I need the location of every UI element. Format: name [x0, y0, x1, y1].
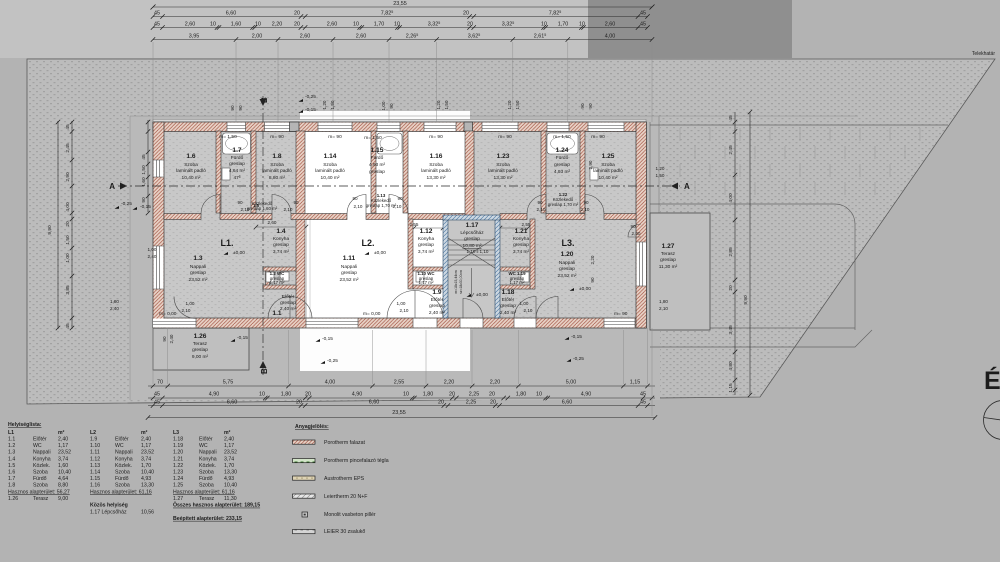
svg-text:2,60: 2,60 — [356, 34, 367, 40]
svg-text:A: A — [109, 182, 115, 191]
svg-text:1.17 Lépcsőház: 1.17 Lépcsőház — [90, 510, 127, 516]
svg-text:2,40: 2,40 — [632, 231, 641, 236]
svg-text:10,56: 10,56 — [141, 510, 154, 516]
svg-text:greslap: greslap — [500, 303, 516, 309]
svg-text:1.12: 1.12 — [90, 456, 100, 462]
svg-text:1,60: 1,60 — [231, 22, 242, 28]
svg-text:Austrotherm EPS: Austrotherm EPS — [324, 476, 365, 482]
svg-text:2,45: 2,45 — [65, 143, 71, 153]
svg-text:4,00: 4,00 — [728, 193, 734, 203]
svg-text:90: 90 — [237, 200, 243, 205]
svg-text:Előtér: Előtér — [502, 297, 515, 303]
svg-text:4,00: 4,00 — [65, 202, 71, 212]
svg-text:1,80: 1,80 — [516, 392, 527, 398]
svg-text:Helyiséglista:: Helyiséglista: — [8, 422, 42, 428]
svg-text:10,40 m²: 10,40 m² — [321, 175, 340, 181]
svg-text:laminált padló: laminált padló — [488, 168, 518, 174]
svg-text:Közlek.: Közlek. — [33, 463, 50, 469]
svg-text:20: 20 — [728, 285, 734, 291]
svg-text:Nappali: Nappali — [33, 450, 51, 456]
svg-text:1.17: 1.17 — [466, 222, 479, 229]
svg-text:Előtér: Előtér — [282, 294, 295, 300]
svg-text:2,45: 2,45 — [728, 145, 734, 155]
svg-text:1,50: 1,50 — [656, 173, 665, 178]
svg-text:10,40: 10,40 — [141, 470, 154, 476]
svg-text:WC: WC — [199, 443, 208, 449]
svg-text:1,17 m²: 1,17 m² — [419, 280, 434, 285]
svg-text:1.10: 1.10 — [90, 443, 100, 449]
svg-text:Terasz: Terasz — [193, 341, 208, 347]
svg-text:Összes hasznos alapterület: 18: Összes hasznos alapterület: 189,15 — [173, 502, 260, 509]
svg-text:Nappali: Nappali — [190, 264, 206, 270]
svg-text:1.11: 1.11 — [90, 450, 100, 456]
svg-text:m= 90: m= 90 — [498, 134, 512, 140]
svg-text:Beépített alapterület: 233,15: Beépített alapterület: 233,15 — [173, 516, 242, 522]
svg-text:Porotherm falazat: Porotherm falazat — [324, 440, 366, 446]
svg-text:2,40 m²: 2,40 m² — [429, 310, 446, 316]
svg-text:23,52 m²: 23,52 m² — [340, 277, 359, 283]
svg-text:9,00: 9,00 — [58, 496, 68, 502]
svg-text:23,52 m²: 23,52 m² — [558, 273, 577, 279]
svg-text:1,17: 1,17 — [224, 443, 234, 449]
svg-text:1,00: 1,00 — [148, 247, 157, 252]
svg-text:2,10: 2,10 — [581, 207, 590, 212]
svg-text:45: 45 — [154, 400, 160, 406]
svg-text:1,80: 1,80 — [281, 392, 292, 398]
svg-text:10: 10 — [541, 22, 547, 28]
svg-text:1.7: 1.7 — [8, 476, 15, 482]
svg-text:90: 90 — [580, 103, 585, 109]
svg-text:m= 1,50: m= 1,50 — [364, 135, 382, 141]
svg-text:m= 0,00: m= 0,00 — [159, 311, 177, 317]
svg-text:45: 45 — [141, 154, 147, 160]
svg-text:10: 10 — [536, 392, 542, 398]
svg-text:Hasznos alapterület: 61,16: Hasznos alapterület: 61,16 — [90, 489, 152, 495]
svg-text:1.16: 1.16 — [90, 483, 100, 489]
svg-text:1,17: 1,17 — [58, 443, 68, 449]
svg-text:4,64 m²: 4,64 m² — [229, 168, 246, 174]
svg-text:2,55: 2,55 — [522, 222, 531, 227]
svg-text:4,00: 4,00 — [605, 34, 616, 40]
svg-text:Szoba: Szoba — [496, 162, 510, 168]
svg-text:1.21: 1.21 — [173, 456, 183, 462]
svg-text:LEIER 30 zsalukő: LEIER 30 zsalukő — [324, 529, 365, 535]
svg-text:1.6: 1.6 — [8, 470, 15, 476]
svg-text:20: 20 — [438, 400, 444, 406]
svg-text:90: 90 — [630, 224, 636, 229]
svg-text:L3: L3 — [173, 430, 179, 436]
svg-text:-0,25: -0,25 — [327, 358, 338, 364]
svg-text:70: 70 — [157, 380, 163, 386]
svg-text:1.24: 1.24 — [173, 476, 183, 482]
svg-text:1.3: 1.3 — [8, 450, 15, 456]
svg-text:1.18: 1.18 — [502, 289, 515, 296]
svg-text:greslap: greslap — [280, 300, 296, 306]
svg-text:Nappali: Nappali — [559, 260, 575, 266]
svg-text:4,90: 4,90 — [581, 392, 592, 398]
svg-text:10: 10 — [210, 22, 216, 28]
svg-text:A: A — [684, 182, 690, 191]
svg-text:2,60: 2,60 — [300, 34, 311, 40]
svg-text:6,60: 6,60 — [562, 400, 573, 406]
svg-text:m= 90: m= 90 — [270, 134, 284, 140]
svg-text:10,40: 10,40 — [224, 483, 237, 489]
svg-text:Terasz: Terasz — [661, 251, 676, 257]
svg-text:Szoba: Szoba — [429, 162, 443, 168]
svg-text:L1.: L1. — [220, 238, 233, 248]
svg-text:90: 90 — [537, 200, 543, 205]
svg-text:m= 1,50: m= 1,50 — [553, 134, 571, 140]
svg-text:Közlek.: Közlek. — [199, 463, 216, 469]
svg-text:2,90: 2,90 — [65, 172, 71, 182]
svg-text:L2.: L2. — [361, 238, 374, 248]
svg-text:Szoba: Szoba — [270, 162, 284, 168]
svg-text:2,25: 2,25 — [469, 392, 480, 398]
svg-text:m= 0,00: m= 0,00 — [363, 311, 381, 317]
svg-text:Fürdő: Fürdő — [33, 476, 47, 482]
svg-text:-0,15: -0,15 — [322, 336, 333, 342]
svg-text:2,55: 2,55 — [410, 222, 419, 227]
svg-text:greslap: greslap — [554, 162, 570, 168]
svg-text:13,30 m²: 13,30 m² — [494, 175, 513, 181]
svg-text:m²: m² — [141, 430, 148, 436]
svg-text:Hasznos alapterület: 61,16: Hasznos alapterület: 61,16 — [173, 489, 235, 495]
svg-text:1.24: 1.24 — [556, 147, 569, 154]
svg-text:20: 20 — [294, 11, 300, 17]
svg-text:-0,15: -0,15 — [140, 204, 151, 210]
svg-text:Nappali: Nappali — [341, 264, 357, 270]
svg-text:Terasz: Terasz — [199, 496, 215, 502]
svg-text:1,80: 1,80 — [423, 392, 434, 398]
svg-text:13,30 m²: 13,30 m² — [427, 175, 446, 181]
svg-text:-0,15: -0,15 — [571, 334, 582, 340]
svg-text:1.23: 1.23 — [497, 153, 510, 160]
svg-text:4,93: 4,93 — [224, 476, 234, 482]
svg-text:45: 45 — [154, 392, 160, 398]
svg-text:Közös helyiség: Közös helyiség — [90, 503, 128, 509]
svg-text:2,10: 2,10 — [284, 207, 293, 212]
svg-text:2,40: 2,40 — [224, 437, 234, 443]
svg-text:6,60: 6,60 — [227, 400, 238, 406]
svg-text:1.9: 1.9 — [432, 289, 441, 296]
svg-text:sz=18x30,00cm: sz=18x30,00cm — [459, 270, 463, 294]
svg-text:L1: L1 — [8, 430, 14, 436]
svg-text:13,30: 13,30 — [141, 483, 154, 489]
svg-text:4,90: 4,90 — [209, 392, 220, 398]
svg-text:13,30: 13,30 — [224, 470, 237, 476]
svg-text:1,00: 1,00 — [381, 101, 386, 110]
svg-text:2,10: 2,10 — [182, 308, 191, 313]
svg-text:3,95: 3,95 — [189, 34, 200, 40]
svg-text:3,74: 3,74 — [224, 456, 234, 462]
svg-text:Nappali: Nappali — [199, 450, 217, 456]
svg-text:9,90: 9,90 — [743, 295, 749, 305]
svg-text:Fürdő: Fürdő — [115, 476, 129, 482]
svg-text:45: 45 — [65, 124, 71, 130]
svg-text:6,60: 6,60 — [226, 11, 237, 17]
svg-text:1.20: 1.20 — [561, 251, 574, 258]
svg-text:2,10: 2,10 — [524, 308, 533, 313]
svg-text:1.8: 1.8 — [272, 153, 281, 160]
svg-text:1.16: 1.16 — [430, 153, 443, 160]
svg-text:1.4: 1.4 — [276, 228, 285, 235]
svg-text:1.25: 1.25 — [602, 153, 615, 160]
svg-text:Szoba: Szoba — [199, 470, 214, 476]
svg-text:1,17 m²: 1,17 m² — [270, 280, 285, 285]
svg-text:10,40 m²: 10,40 m² — [599, 175, 618, 181]
svg-text:2,40: 2,40 — [110, 306, 119, 311]
svg-text:2,10: 2,10 — [241, 207, 250, 212]
svg-text:2,10: 2,10 — [537, 207, 546, 212]
svg-text:1,50: 1,50 — [330, 100, 335, 109]
svg-text:1,17 m²: 1,17 m² — [510, 280, 525, 285]
svg-text:2,10: 2,10 — [354, 204, 363, 209]
svg-text:1.15: 1.15 — [90, 476, 100, 482]
svg-text:Monolit vasbeton pillér: Monolit vasbeton pillér — [324, 512, 376, 518]
svg-text:Szoba: Szoba — [601, 162, 615, 168]
svg-text:1,15: 1,15 — [728, 383, 734, 393]
svg-text:20: 20 — [305, 392, 311, 398]
svg-text:1.8: 1.8 — [8, 483, 15, 489]
svg-text:3,74 m²: 3,74 m² — [513, 249, 530, 255]
svg-text:20: 20 — [490, 400, 496, 406]
svg-text:2,85: 2,85 — [728, 247, 734, 257]
svg-text:90: 90 — [397, 196, 403, 201]
svg-text:Konyha: Konyha — [273, 236, 290, 242]
svg-text:1,00: 1,00 — [520, 301, 529, 306]
svg-text:1,20: 1,20 — [322, 100, 327, 109]
svg-text:1.22: 1.22 — [173, 463, 183, 469]
svg-text:1.14: 1.14 — [90, 470, 100, 476]
svg-text:90: 90 — [389, 103, 394, 109]
svg-text:1,00: 1,00 — [186, 301, 195, 306]
svg-text:20: 20 — [296, 400, 302, 406]
svg-text:1,10: 1,10 — [480, 249, 489, 254]
svg-text:É: É — [984, 366, 1000, 395]
svg-text:4,90: 4,90 — [352, 392, 363, 398]
svg-text:Konyha: Konyha — [513, 236, 530, 242]
svg-text:2,60: 2,60 — [605, 22, 616, 28]
svg-text:1,00: 1,00 — [65, 253, 71, 263]
svg-text:1.4: 1.4 — [8, 456, 15, 462]
svg-text:23,55: 23,55 — [393, 1, 407, 7]
svg-text:3,45: 3,45 — [728, 325, 734, 335]
svg-text:greslap: greslap — [341, 270, 357, 276]
svg-text:45: 45 — [640, 400, 646, 406]
svg-text:Konyha: Konyha — [418, 236, 435, 242]
svg-text:4,93 m²: 4,93 m² — [554, 169, 571, 175]
svg-text:1,50: 1,50 — [65, 235, 71, 245]
svg-text:-0,15: -0,15 — [237, 335, 248, 341]
svg-text:90: 90 — [162, 336, 167, 342]
svg-text:10: 10 — [394, 22, 400, 28]
svg-text:90: 90 — [230, 105, 235, 111]
svg-text:greslap: greslap — [513, 242, 529, 248]
svg-text:Porotherm pincefalazó tégla: Porotherm pincefalazó tégla — [324, 458, 389, 464]
svg-text:3,74: 3,74 — [141, 456, 151, 462]
svg-text:2,40: 2,40 — [58, 437, 68, 443]
svg-text:10,40 m²: 10,40 m² — [182, 175, 201, 181]
svg-text:90: 90 — [352, 196, 358, 201]
svg-text:1.5: 1.5 — [8, 463, 15, 469]
svg-text:Terasz: Terasz — [33, 496, 49, 502]
svg-text:±0,00: ±0,00 — [476, 292, 488, 298]
svg-text:2,20: 2,20 — [444, 380, 455, 386]
svg-text:m²: m² — [224, 430, 231, 436]
svg-text:2,40 m²: 2,40 m² — [280, 306, 297, 312]
svg-text:4,93: 4,93 — [141, 476, 151, 482]
svg-text:1,20: 1,20 — [436, 100, 441, 109]
svg-text:5,00: 5,00 — [566, 380, 577, 386]
svg-text:2,20: 2,20 — [590, 255, 595, 264]
svg-text:Nappali: Nappali — [115, 450, 133, 456]
svg-text:1,60: 1,60 — [141, 177, 147, 187]
svg-text:3,85: 3,85 — [65, 285, 71, 295]
svg-text:45: 45 — [640, 22, 646, 28]
svg-text:90: 90 — [141, 197, 147, 203]
svg-text:Konyha: Konyha — [199, 456, 217, 462]
svg-text:Fürdő: Fürdő — [199, 476, 213, 482]
svg-text:2,40: 2,40 — [148, 254, 157, 259]
svg-text:20: 20 — [463, 11, 469, 17]
svg-text:m=18x15,44cm: m=18x15,44cm — [454, 270, 458, 293]
svg-text:1.11: 1.11 — [343, 255, 356, 262]
svg-text:2,25: 2,25 — [466, 400, 477, 406]
svg-text:1,50: 1,50 — [515, 100, 520, 109]
svg-text:9,00 m²: 9,00 m² — [192, 354, 209, 360]
svg-text:Szoba: Szoba — [33, 483, 48, 489]
svg-text:WC: WC — [115, 443, 124, 449]
svg-text:greslap: greslap — [464, 236, 480, 242]
svg-text:45: 45 — [65, 323, 71, 329]
svg-text:2,20: 2,20 — [490, 380, 501, 386]
svg-text:20: 20 — [65, 221, 71, 227]
svg-text:1.13: 1.13 — [90, 463, 100, 469]
svg-text:greslap: greslap — [369, 169, 385, 175]
svg-text:Konyha: Konyha — [33, 456, 51, 462]
svg-text:8,80: 8,80 — [58, 483, 68, 489]
svg-text:1,70: 1,70 — [224, 463, 234, 469]
svg-text:11,30: 11,30 — [224, 496, 237, 502]
svg-text:Előtér: Előtér — [115, 437, 129, 443]
svg-text:Hasznos alapterület: 56,27: Hasznos alapterület: 56,27 — [8, 489, 70, 495]
svg-text:greslap: greslap — [429, 303, 445, 309]
svg-text:8,80 m²: 8,80 m² — [269, 175, 286, 181]
svg-text:B: B — [260, 368, 269, 374]
svg-text:9,90: 9,90 — [47, 225, 53, 235]
svg-text:1,50: 1,50 — [444, 100, 449, 109]
svg-text:20: 20 — [294, 22, 300, 28]
svg-text:90: 90 — [588, 103, 593, 109]
svg-text:5: 5 — [477, 250, 479, 254]
svg-text:10: 10 — [353, 22, 359, 28]
svg-text:4,93 m²: 4,93 m² — [369, 162, 386, 168]
svg-text:2,20: 2,20 — [272, 22, 283, 28]
svg-text:2,55: 2,55 — [394, 380, 405, 386]
svg-text:greslap: greslap — [559, 266, 575, 272]
svg-text:23,52: 23,52 — [224, 450, 237, 456]
svg-text:Előtér: Előtér — [431, 297, 444, 303]
svg-text:4,64: 4,64 — [58, 476, 68, 482]
svg-text:m= 90: m= 90 — [614, 311, 628, 317]
svg-text:1.26: 1.26 — [8, 496, 18, 502]
svg-text:2,10: 2,10 — [400, 308, 409, 313]
svg-text:1.7: 1.7 — [232, 147, 241, 154]
svg-text:90: 90 — [590, 277, 595, 283]
svg-text:20: 20 — [467, 22, 473, 28]
svg-text:1,60: 1,60 — [58, 463, 68, 469]
svg-text:90: 90 — [583, 200, 589, 205]
svg-text:1,70: 1,70 — [141, 463, 151, 469]
svg-text:1,70: 1,70 — [374, 22, 385, 28]
svg-text:L2: L2 — [90, 430, 96, 436]
svg-text:23,52: 23,52 — [58, 450, 71, 456]
svg-text:1,70: 1,70 — [558, 22, 569, 28]
svg-text:2,10: 2,10 — [659, 306, 668, 311]
svg-text:45: 45 — [640, 11, 646, 17]
svg-text:Fürdő: Fürdő — [556, 155, 569, 161]
svg-text:1.15: 1.15 — [371, 147, 384, 154]
svg-text:laminált padló: laminált padló — [262, 168, 292, 174]
svg-text:45: 45 — [154, 22, 160, 28]
svg-text:±0,00: ±0,00 — [374, 250, 386, 256]
svg-text:1.26: 1.26 — [194, 333, 207, 340]
svg-text:90: 90 — [238, 105, 243, 111]
svg-text:1,80: 1,80 — [110, 299, 119, 304]
svg-text:10: 10 — [255, 22, 261, 28]
svg-text:1.21: 1.21 — [515, 228, 528, 235]
svg-text:greslap: greslap — [190, 270, 206, 276]
svg-text:WC: WC — [33, 443, 42, 449]
svg-text:m= 90: m= 90 — [328, 134, 342, 140]
svg-text:2,00: 2,00 — [252, 34, 263, 40]
svg-text:greslap: greslap — [418, 242, 434, 248]
svg-text:4,80: 4,80 — [728, 361, 734, 371]
svg-text:10: 10 — [259, 392, 265, 398]
svg-text:3,74 m²: 3,74 m² — [418, 249, 435, 255]
svg-text:1,15: 1,15 — [630, 380, 641, 386]
svg-text:±0,00: ±0,00 — [233, 250, 245, 256]
svg-text:greslap: greslap — [192, 347, 208, 353]
svg-text:laminált padló: laminált padló — [176, 168, 206, 174]
svg-text:greslap 1,70 m²: greslap 1,70 m² — [548, 202, 579, 207]
svg-text:m= 1,50: m= 1,50 — [219, 134, 237, 140]
svg-text:m= 90: m= 90 — [591, 134, 605, 140]
svg-text:3,74: 3,74 — [58, 456, 68, 462]
svg-text:90: 90 — [293, 200, 299, 205]
svg-text:2,40: 2,40 — [169, 334, 174, 343]
svg-text:23,55: 23,55 — [392, 410, 406, 416]
svg-text:L3.: L3. — [561, 238, 574, 248]
svg-text:-0,15: -0,15 — [305, 107, 316, 113]
svg-text:±0,00: ±0,00 — [579, 286, 591, 292]
svg-text:2,60: 2,60 — [268, 220, 277, 225]
svg-text:-0,25: -0,25 — [121, 201, 132, 207]
svg-text:23,52 m²: 23,52 m² — [189, 277, 208, 283]
svg-text:Előtér: Előtér — [199, 437, 213, 443]
svg-text:2,40: 2,40 — [141, 437, 151, 443]
svg-text:Szoba: Szoba — [323, 162, 337, 168]
svg-text:1.3: 1.3 — [193, 255, 202, 262]
svg-text:Lépcsőház: Lépcsőház — [460, 230, 484, 236]
svg-text:2,60: 2,60 — [185, 22, 196, 28]
svg-text:1,80: 1,80 — [659, 299, 668, 304]
svg-text:Fürdő: Fürdő — [371, 155, 384, 161]
svg-text:6,60: 6,60 — [369, 400, 380, 406]
svg-text:Szoba: Szoba — [184, 162, 198, 168]
svg-text:10,40: 10,40 — [58, 470, 71, 476]
svg-text:Leiertherm 20 N+F: Leiertherm 20 N+F — [324, 494, 367, 500]
